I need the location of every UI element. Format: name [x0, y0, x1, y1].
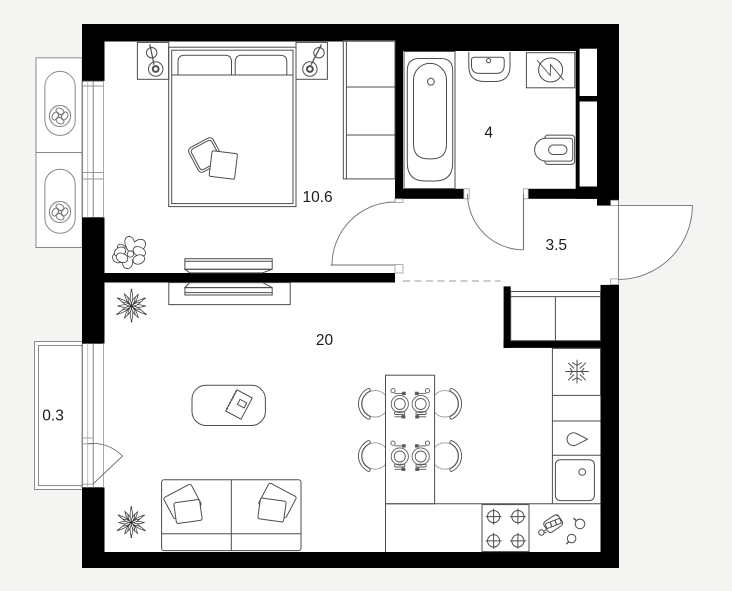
svg-text:4: 4: [484, 125, 493, 142]
svg-text:10.6: 10.6: [303, 189, 333, 206]
svg-text:3.5: 3.5: [546, 237, 568, 254]
svg-text:0.3: 0.3: [42, 408, 64, 425]
svg-text:20: 20: [316, 332, 334, 349]
